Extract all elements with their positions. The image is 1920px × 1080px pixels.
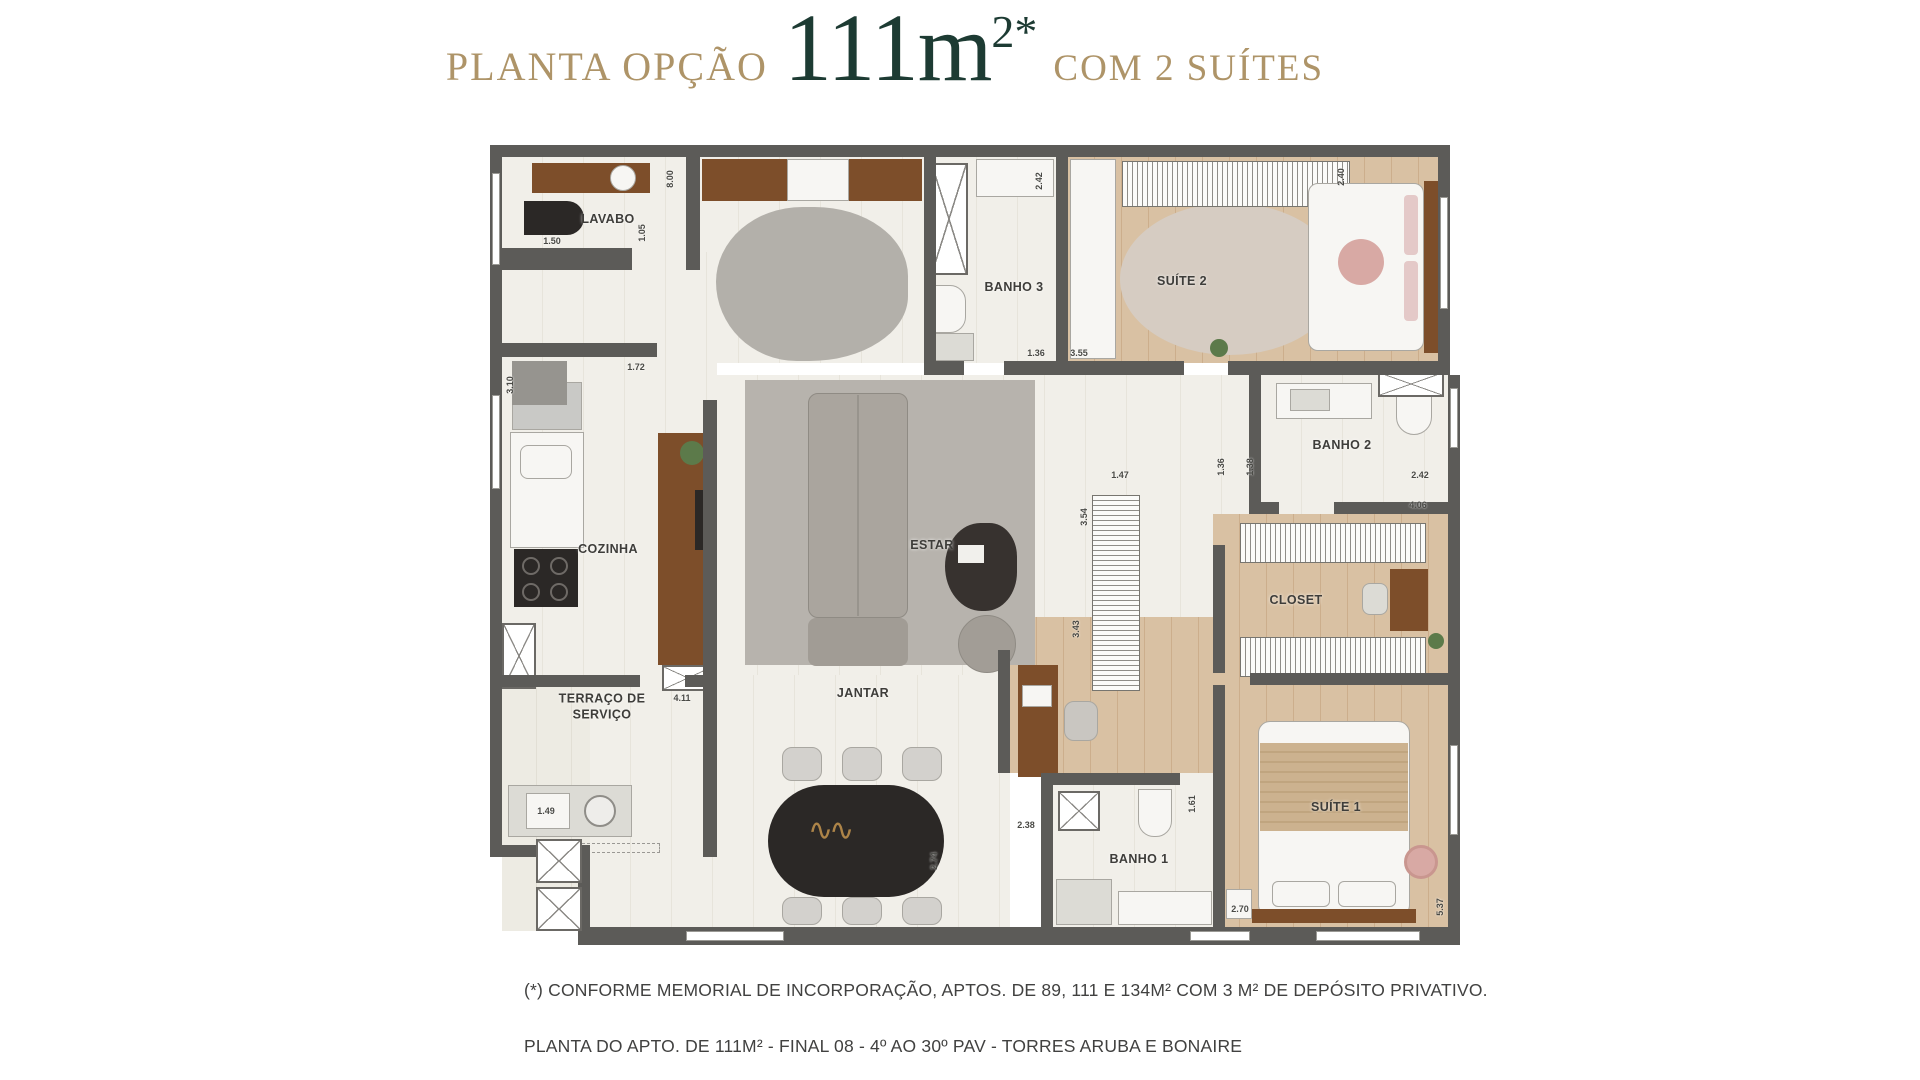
- room-label-terraco: TERRAÇO DE SERVIÇO: [542, 691, 662, 722]
- wall-banho3-right: [1056, 157, 1068, 375]
- wall-cozinha-top: [502, 343, 657, 357]
- wall-banho2-bottom-1: [1249, 502, 1279, 514]
- wall-right-lower: [1448, 375, 1460, 945]
- suite2-rug: [1120, 203, 1340, 355]
- dim-hall-3: 1.38: [1245, 458, 1255, 476]
- wall-banho3-left: [924, 157, 936, 375]
- title-area-sup: 2*: [991, 6, 1037, 57]
- dim-suite2-1: 1.36: [1027, 348, 1045, 358]
- suite2-wardrobe: [1070, 159, 1116, 359]
- window-cozinha-left: [492, 395, 500, 489]
- copa-cabinet-right: [849, 159, 922, 201]
- dim-cozinha-open: 1.72: [627, 362, 645, 372]
- dim-closet: 4.06: [1409, 500, 1427, 510]
- lavabo-sink: [610, 165, 636, 191]
- closet-plant: [1428, 633, 1444, 649]
- dim-suite1-width: 2.70: [1231, 904, 1249, 914]
- dining-chair-6: [902, 897, 942, 925]
- room-label-estar: ESTAR: [910, 538, 953, 552]
- wall-cozinha-divider: [703, 400, 717, 675]
- wall-terraco-divider: [703, 675, 717, 857]
- wall-terraco-top-1: [502, 675, 640, 687]
- dining-chair-5: [842, 897, 882, 925]
- wall-lavabo-divider: [686, 157, 700, 270]
- dim-terraco: 4.11: [673, 693, 690, 703]
- office-desk-items: [1022, 685, 1052, 707]
- floor-plan: ∿∿: [490, 145, 1460, 945]
- dim-suite2-2: 3.55: [1070, 348, 1088, 358]
- banho1-shaft: [1058, 791, 1100, 831]
- window-banho2-right: [1450, 388, 1458, 448]
- copa-island: [716, 207, 908, 361]
- dim-suite1-depth: 5.37: [1435, 898, 1445, 916]
- suite1-pillow-2: [1338, 881, 1396, 907]
- room-label-banho1: BANHO 1: [1109, 852, 1168, 866]
- room-label-suite1: SUÍTE 1: [1311, 800, 1361, 814]
- banho2-basin: [1290, 389, 1330, 411]
- tv-panel-plant: [680, 441, 704, 465]
- closet-wardrobe-top: [1240, 523, 1426, 563]
- wall-banho2-bottom-2: [1334, 502, 1448, 514]
- dim-banho1-depth: 1.61: [1187, 795, 1197, 813]
- wall-suite1-left: [1213, 685, 1225, 933]
- room-label-banho3: BANHO 3: [984, 280, 1043, 294]
- copa-cabinet-left: [702, 159, 787, 201]
- office-chair: [1064, 701, 1098, 741]
- dining-chair-1: [782, 747, 822, 781]
- room-label-banho2: BANHO 2: [1312, 438, 1371, 452]
- tv: [695, 490, 703, 550]
- page: { "title":{"prefix":"PLANTA OPÇÃO","area…: [0, 0, 1920, 1080]
- dim-wardrobe: 3.54: [1079, 508, 1089, 526]
- hall-wardrobe: [1092, 495, 1140, 691]
- office-desk: [1018, 665, 1058, 777]
- kitchen-sink: [520, 445, 572, 479]
- wall-office-left: [998, 650, 1010, 773]
- dim-suite2-right: 2.40: [1336, 168, 1346, 186]
- page-title: PLANTA OPÇÃO 111m2* COM 2 SUÍTES: [0, 0, 1770, 104]
- dim-wardrobe-2: 3.43: [1071, 620, 1081, 638]
- suite1-blanket: [1260, 743, 1408, 831]
- room-label-closet: CLOSET: [1269, 593, 1322, 607]
- footer-plan-info: PLANTA DO APTO. DE 111M² - FINAL 08 - 4º…: [524, 1036, 1242, 1057]
- banho1-shower: [1056, 879, 1112, 925]
- suite2-pillow-1: [1404, 195, 1418, 255]
- window-lavabo-left: [492, 173, 500, 265]
- title-suffix: COM 2 SUÍTES: [1053, 47, 1324, 90]
- wall-band-2: [1004, 361, 1184, 375]
- suite1-rose-decor: [1404, 845, 1438, 879]
- wall-suite1-top: [1250, 673, 1448, 685]
- room-label-cozinha: COZINHA: [578, 542, 638, 556]
- title-area: 111m2*: [784, 0, 1038, 96]
- title-prefix: PLANTA OPÇÃO: [446, 43, 768, 90]
- room-label-jantar: JANTAR: [837, 686, 889, 700]
- coffee-table-book: [958, 545, 984, 563]
- stove-burner-3: [522, 583, 540, 601]
- room-label-lavabo: LAVABO: [581, 212, 634, 226]
- dim-banho1-width: 2.38: [1017, 820, 1035, 830]
- window-banho1-bottom: [1190, 931, 1250, 941]
- closet-wardrobe-bottom: [1240, 637, 1426, 677]
- banho1-counter: [1118, 891, 1212, 925]
- wall-banho2-left: [1249, 375, 1261, 514]
- dim-top-8: 8.00: [665, 170, 675, 188]
- stove-burner-4: [550, 583, 568, 601]
- suite1-headboard: [1252, 909, 1416, 923]
- dim-banho3: 2.42: [1034, 172, 1044, 190]
- dim-hall: 1.47: [1111, 470, 1129, 480]
- dim-terraco-width: 1.49: [537, 806, 555, 816]
- sofa-chaise: [808, 618, 908, 666]
- wall-top: [490, 145, 1450, 157]
- banho3-toilet: [932, 285, 966, 333]
- footer-note: (*) CONFORME MEMORIAL DE INCORPORAÇÃO, A…: [524, 980, 1488, 1001]
- dining-chair-2: [842, 747, 882, 781]
- wall-band-3: [1228, 361, 1450, 375]
- sofa-seam: [857, 395, 859, 616]
- shaft-bottom-left-1: [536, 839, 582, 883]
- banho3-shower: [930, 333, 974, 361]
- lavabo-toilet: [524, 201, 584, 235]
- wall-closet-left: [1213, 545, 1225, 673]
- kitchen-upper-cabinet: [512, 361, 567, 405]
- banho1-toilet: [1138, 789, 1172, 837]
- room-label-suite2: SUÍTE 2: [1157, 274, 1207, 288]
- suite1-pillow-1: [1272, 881, 1330, 907]
- suite2-pillow-2: [1404, 261, 1418, 321]
- wall-banho1-left: [1041, 773, 1053, 933]
- copa-sink: [787, 159, 849, 201]
- wall-terraco-top-2: [685, 675, 703, 687]
- dim-banho2: 2.42: [1411, 470, 1429, 480]
- dim-lavabo-depth: 1.05: [637, 224, 647, 242]
- dining-decor: ∿∿: [808, 813, 908, 863]
- dining-chair-4: [782, 897, 822, 925]
- dining-chair-3: [902, 747, 942, 781]
- coffee-table: [945, 523, 1017, 611]
- window-suite1-right: [1450, 745, 1458, 835]
- window-suite1-bottom: [1316, 931, 1420, 941]
- suite2-plant: [1210, 339, 1228, 357]
- dim-hall-2: 1.36: [1216, 458, 1226, 476]
- shaft-bottom-left-2: [536, 887, 582, 931]
- dim-cozinha-depth: 3.10: [505, 376, 515, 394]
- wall-band-1: [924, 361, 964, 375]
- window-suite2-right: [1440, 197, 1448, 309]
- terraco-washer: [584, 795, 616, 827]
- suite2-closet-strip: [1424, 181, 1438, 353]
- closet-desk: [1390, 569, 1428, 631]
- dim-lavabo-width: 1.50: [543, 236, 561, 246]
- closet-chair: [1362, 583, 1388, 615]
- wall-banho1-top: [1041, 773, 1180, 785]
- wall-lavabo-bottom: [502, 248, 632, 270]
- suite2-throw: [1338, 239, 1384, 285]
- stove-burner-1: [522, 557, 540, 575]
- dim-jantar-right: 2.74: [929, 852, 939, 870]
- stove-burner-2: [550, 557, 568, 575]
- window-jantar-bottom: [686, 931, 784, 941]
